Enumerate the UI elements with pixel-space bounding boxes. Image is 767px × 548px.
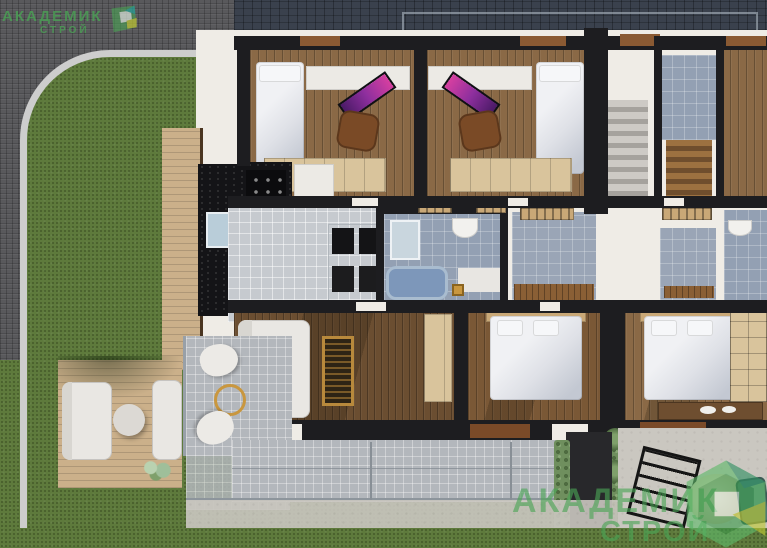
desk-a	[306, 66, 410, 90]
dining-table-1	[332, 228, 354, 254]
akademik-stroy-logo-large	[685, 460, 767, 548]
deck-plant	[138, 456, 174, 482]
hall-c-bench	[664, 286, 714, 298]
bathroom-sink	[452, 218, 478, 238]
bed-c-pillow-2	[687, 320, 713, 336]
railing-post-1	[370, 442, 372, 500]
room-c-top-floor	[722, 50, 767, 198]
brand-name: АКАДЕМИК	[2, 9, 103, 24]
bathtub	[386, 266, 448, 300]
wall-living-bedb	[454, 300, 468, 422]
door-gap-4	[356, 302, 386, 311]
wall-divider-ab	[414, 36, 427, 206]
floorplan-render: АКАДЕМИК СТРОЙ АКАДЕМИК СТРОЙ	[0, 0, 767, 548]
wall-low-horizontal	[228, 300, 767, 313]
door-gap-1	[352, 198, 378, 206]
wall-stair-right	[654, 36, 662, 208]
brand-sub: СТРОЙ	[40, 26, 103, 36]
lintel-2	[520, 36, 566, 46]
pillow-a	[259, 65, 301, 82]
pillow-b	[539, 65, 581, 82]
bed-c-pillow-1	[651, 320, 677, 336]
plate-1	[700, 406, 716, 414]
office-chair-a	[335, 109, 381, 153]
stair-landing-c	[660, 55, 716, 140]
wall-slab-b	[584, 28, 608, 214]
gold-frame-console	[322, 336, 354, 406]
wall-bedb-bedc	[600, 300, 625, 422]
door-gap-3	[664, 198, 684, 206]
akademik-stroy-logo-small	[105, 2, 141, 38]
door-gap-2	[508, 198, 528, 206]
coffee-table-round	[113, 404, 145, 436]
door-gap-5	[540, 302, 560, 311]
outdoor-sofa-left-back	[62, 382, 72, 460]
wall-unit-c	[716, 36, 724, 208]
bedroom-c-shelving	[730, 310, 767, 402]
bathroom-c-sink	[728, 220, 752, 236]
concrete-stairs-b	[604, 100, 648, 200]
bed-b-pillow-2	[533, 320, 559, 336]
plate-2	[722, 406, 736, 413]
stair-railing-c	[662, 208, 712, 220]
facade-sill-1	[470, 424, 530, 438]
hall-b-railing	[520, 208, 574, 220]
cooktop	[246, 170, 286, 198]
dining-chair-1	[332, 266, 354, 292]
office-chair-b	[457, 109, 503, 153]
wardrobe-b	[450, 158, 572, 192]
wall-mid-horizontal	[228, 196, 767, 208]
shower-tray	[390, 220, 420, 260]
watermark-bottom-right: АКАДЕМИК СТРОЙ	[500, 460, 767, 548]
floor-drain	[452, 284, 464, 296]
toilet-ledge	[458, 268, 500, 292]
lintel-1	[300, 36, 340, 46]
outdoor-sofa-right	[152, 380, 182, 460]
lintel-4	[726, 36, 766, 46]
living-wardrobe	[424, 314, 452, 402]
wall-left-top	[237, 36, 250, 166]
bed-b-pillow-1	[497, 320, 523, 336]
kitchen-balcony-deck	[162, 128, 203, 370]
hall-b-bench	[514, 284, 594, 300]
watermark-top-left: АКАДЕМИК СТРОЙ	[2, 2, 141, 38]
